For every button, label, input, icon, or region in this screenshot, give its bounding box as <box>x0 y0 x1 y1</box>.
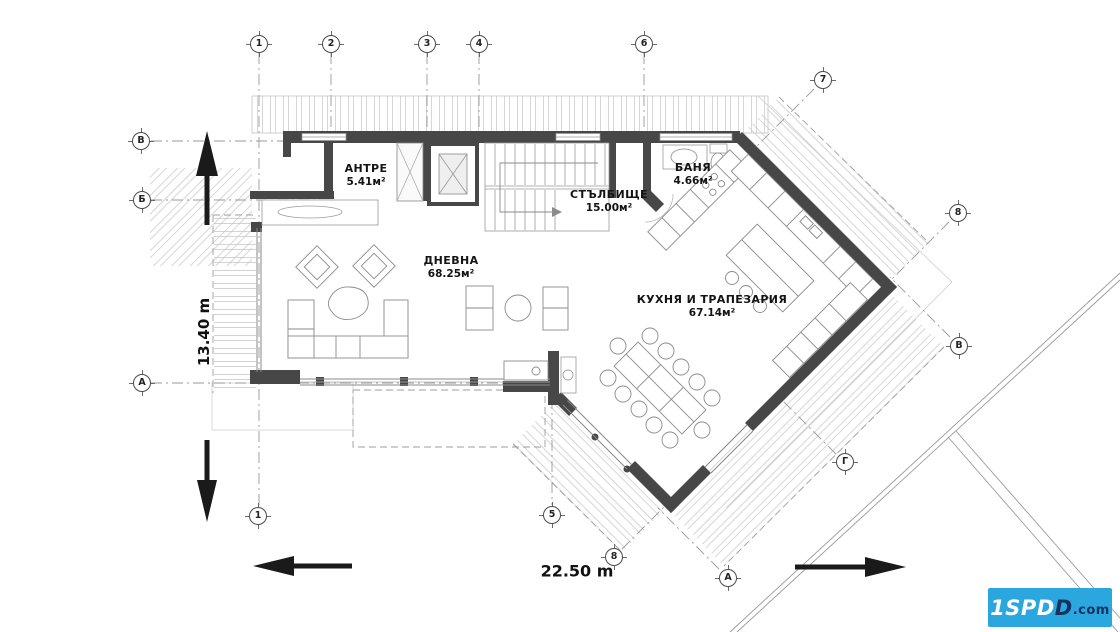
armchair <box>353 245 395 287</box>
room-label-stalbishte: СТЪЛБИЩЕ15.00м² <box>570 188 648 216</box>
bar-stool <box>726 272 739 285</box>
room-label-dnevna: ДНЕВНА68.25м² <box>423 254 478 282</box>
wall-porch <box>250 191 334 199</box>
coffee-table <box>328 287 368 320</box>
logo-suffix: .com <box>1073 603 1110 618</box>
floor-plan-drawing <box>0 0 1120 632</box>
grid-marker-1: 1 <box>249 507 267 525</box>
sofa-base <box>288 336 408 358</box>
grid-marker-4: 4 <box>470 35 488 53</box>
porch-planter <box>262 200 378 225</box>
dimension-vertical: 13.40 m <box>195 298 213 366</box>
dimension-horizontal: 22.50 m <box>541 562 614 581</box>
grid-marker-В: В <box>132 132 150 150</box>
round-table <box>505 295 531 321</box>
wall-southwest-corner <box>250 370 300 384</box>
room-label-kuhnya: КУХНЯ И ТРАПЕЗАРИЯ67.14м² <box>637 293 788 321</box>
tv-unit <box>504 361 548 380</box>
logo-watermark: 1SPDD.com <box>988 588 1112 627</box>
arrow-right <box>795 557 906 577</box>
toilet-tank <box>710 144 727 153</box>
grid-marker-В: В <box>950 337 968 355</box>
porch-west-boards <box>214 218 256 388</box>
grid-marker-Г: Г <box>836 453 854 471</box>
arrow-down <box>197 440 217 522</box>
dining-layer <box>600 328 720 448</box>
armchair <box>296 246 338 288</box>
grid-marker-А: А <box>133 374 151 392</box>
grid-marker-5: 5 <box>543 506 561 524</box>
floor-plan-canvas: 1234678ВВБА158АГ АНТРЕ5.41м²СТЪЛБИЩЕ15.0… <box>0 0 1120 632</box>
staircase <box>485 143 609 231</box>
room-label-antre: АНТРЕ5.41м² <box>345 162 388 190</box>
grid-marker-1: 1 <box>250 35 268 53</box>
logo-text-dark: D <box>1055 596 1073 620</box>
logo-text-white: 1SPD <box>990 596 1055 620</box>
grid-marker-2: 2 <box>322 35 340 53</box>
grid-marker-3: 3 <box>418 35 436 53</box>
side-cabinet <box>543 287 568 330</box>
pergola-band <box>252 96 768 133</box>
wall-antre-west <box>324 143 333 193</box>
patio-outline <box>212 383 353 430</box>
grid-marker-А: А <box>719 569 737 587</box>
grid-marker-6: 6 <box>635 35 653 53</box>
room-label-banya: БАНЯ4.66м² <box>673 161 712 189</box>
grid-marker-8: 8 <box>949 204 967 222</box>
arrow-left <box>253 556 352 576</box>
grid-marker-7: 7 <box>814 71 832 89</box>
grid-marker-Б: Б <box>133 191 151 209</box>
